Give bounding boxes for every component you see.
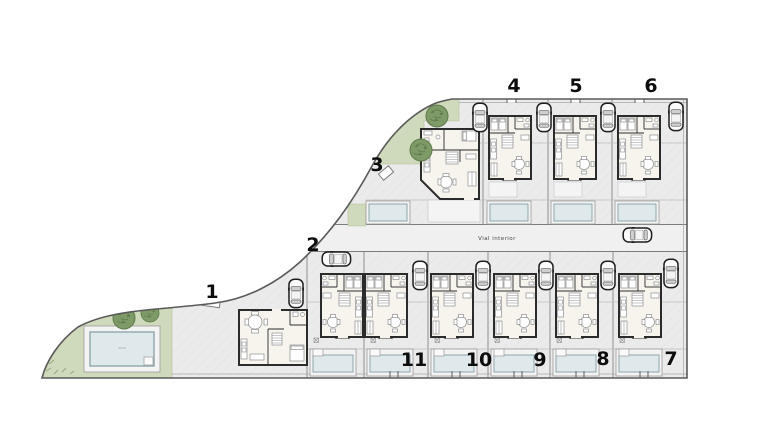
house-plan-unit-9 (494, 274, 536, 339)
car-icon (412, 261, 429, 289)
pool (310, 349, 356, 376)
house-plan-unit-3 (421, 129, 479, 200)
tree-icon (113, 307, 135, 329)
pool (487, 201, 531, 224)
tree-icon (410, 139, 432, 161)
car-icon (536, 103, 553, 131)
unit-pools-top (366, 201, 659, 224)
unit-label-2: 2 (306, 234, 319, 256)
car-icon (600, 103, 617, 131)
unit-label-10: 10 (466, 349, 492, 371)
tree-icon (141, 304, 159, 322)
car-icon (623, 227, 651, 244)
unit-label-5: 5 (569, 75, 582, 97)
unit-label-8: 8 (596, 348, 609, 370)
main-pool (84, 326, 160, 372)
unit-label-11: 11 (401, 349, 427, 371)
road-name-label: Vial interior (478, 236, 516, 242)
house-plan-unit-7 (619, 274, 661, 339)
unit-label-7: 7 (664, 348, 677, 370)
car-icon (668, 102, 685, 130)
house-plan-unit-10 (431, 274, 473, 339)
car-icon (322, 251, 350, 268)
unit-label-6: 6 (644, 75, 657, 97)
green-area-sliver (348, 204, 366, 226)
car-icon (288, 279, 305, 307)
car-icon (600, 261, 617, 289)
site-plan-svg: Vial interior 1 2 3 4 5 6 7 8 9 10 11 (0, 0, 770, 432)
pool (615, 201, 659, 224)
house-plan-unit-2 (321, 274, 363, 339)
pool (551, 201, 595, 224)
car-icon (663, 259, 680, 287)
unit-label-9: 9 (533, 349, 546, 371)
unit-label-4: 4 (507, 75, 520, 97)
unit-label-3: 3 (370, 154, 383, 176)
house-plan-unit-1 (239, 309, 307, 365)
car-icon (538, 261, 555, 289)
floor-plan-canvas: Vial interior 1 2 3 4 5 6 7 8 9 10 11 (0, 0, 770, 432)
pool (366, 201, 410, 224)
house-plan-unit-8 (556, 274, 598, 339)
tree-icon (426, 105, 448, 127)
pool (616, 349, 662, 376)
house-plan-unit-6 (618, 116, 660, 181)
house-plan-unit-5 (554, 116, 596, 181)
house-plan-unit-11 (365, 274, 407, 339)
house-plan-unit-4 (489, 116, 531, 181)
car-icon (472, 103, 489, 131)
car-icon (475, 261, 492, 289)
unit-label-1: 1 (205, 281, 218, 303)
